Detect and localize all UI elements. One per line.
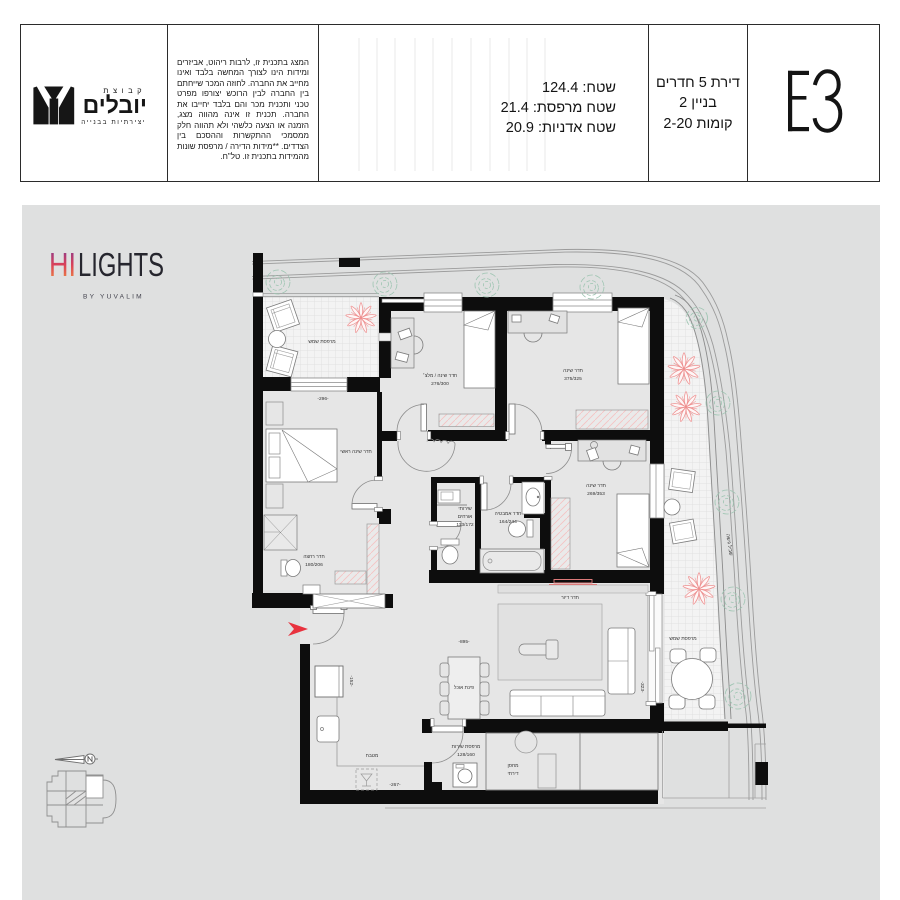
svg-text:מרפסת שמש: מרפסת שמש <box>669 637 696 642</box>
svg-text:פינת אוכל: פינת אוכל <box>454 684 474 691</box>
svg-text:LIGHTS: LIGHTS <box>78 246 164 283</box>
svg-text:חדר שינה: חדר שינה <box>586 484 606 489</box>
svg-text:מחסן: מחסן <box>507 764 518 769</box>
svg-text:-152-: -152- <box>348 675 354 687</box>
svg-text:חדר דיור: חדר דיור <box>561 596 579 601</box>
svg-text:BY YUVALIM: BY YUVALIM <box>83 294 144 301</box>
svg-text:דירתי: דירתי <box>507 772 518 777</box>
svg-text:128/160: 128/160 <box>457 752 475 758</box>
svg-text:-323-: -323- <box>639 681 645 693</box>
svg-text:שירותי: שירותי <box>458 507 472 512</box>
svg-text:חדר רחצה: חדר רחצה <box>303 555 324 560</box>
svg-text:חדר שינה ראשי: חדר שינה ראשי <box>340 450 372 455</box>
svg-text:מטבח: מטבח <box>366 754 379 759</box>
svg-text:חדר שינה / מלצ׳: חדר שינה / מלצ׳ <box>423 372 457 379</box>
svg-text:מרפסת שירות: מרפסת שירות <box>452 745 481 750</box>
svg-text:375/325: 375/325 <box>564 376 582 382</box>
svg-text:חדר שינה: חדר שינה <box>563 369 583 374</box>
svg-text:מרפסת שמש: מרפסת שמש <box>308 340 335 345</box>
svg-text:269/353: 269/353 <box>587 491 605 497</box>
svg-text:164/244: 164/244 <box>499 519 517 525</box>
svg-text:-296-: -296- <box>317 396 329 402</box>
svg-text:חדר אמבטיה: חדר אמבטיה <box>495 512 522 517</box>
svg-text:HI: HI <box>49 246 76 283</box>
svg-text:276/300: 276/300 <box>431 381 449 387</box>
svg-text:אורחים: אורחים <box>458 515 473 520</box>
svg-text:113/172: 113/172 <box>456 522 474 528</box>
svg-text:-267-: -267- <box>389 782 401 788</box>
svg-text:180/206: 180/206 <box>305 562 323 568</box>
svg-text:-895-: -895- <box>458 639 470 645</box>
